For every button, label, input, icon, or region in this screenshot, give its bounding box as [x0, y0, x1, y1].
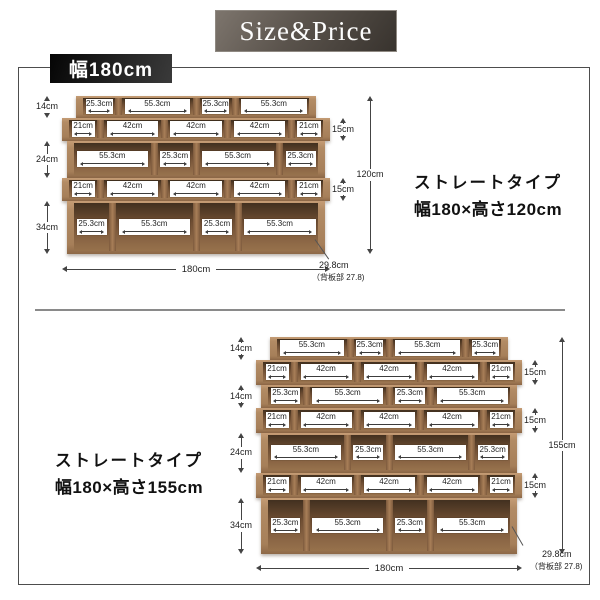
arrow-right-icon	[507, 488, 510, 492]
dimension-line	[319, 400, 377, 401]
width-arrow-icon	[205, 162, 270, 166]
width-arrow-icon	[274, 455, 338, 459]
dimension-line	[241, 438, 242, 447]
compartment: 42cm	[361, 475, 417, 495]
measurement-text: 21cm	[267, 478, 287, 486]
dimension-line	[271, 376, 283, 377]
measurement-label: 21cm	[490, 364, 513, 379]
height-dimension: 34cm	[228, 498, 254, 554]
arrow-right-icon	[107, 109, 110, 113]
arrow-right-icon	[338, 351, 341, 355]
arrow-right-icon	[346, 423, 349, 427]
dimension-line	[277, 457, 335, 458]
compartment: 42cm	[168, 180, 225, 198]
measurement-label: 21cm	[490, 477, 513, 492]
compartment: 25.3cm	[469, 339, 501, 357]
shelf-row: 21cm42cm42cm42cm21cm	[256, 408, 522, 433]
total-width-dimension: 180cm	[256, 562, 522, 574]
compartment: 55.3cm	[393, 435, 469, 470]
compartment: 25.3cm	[354, 339, 386, 357]
shelf-diagram: 25.3cm55.3cm25.3cm55.3cm21cm42cm42cm42cm…	[62, 96, 330, 254]
measurement-label: 55.3cm	[280, 340, 345, 355]
width-arrow-icon	[359, 351, 381, 355]
compartment: 42cm	[231, 180, 288, 198]
compartment: 55.3cm	[122, 98, 192, 115]
arrow-right-icon	[283, 423, 286, 427]
measurement-text: 55.3cm	[225, 152, 251, 160]
dimension-line	[47, 165, 48, 173]
wood-divider	[480, 410, 487, 430]
width-arrow-icon	[303, 375, 348, 379]
compartment: 25.3cm	[200, 98, 232, 115]
dimension-line	[306, 424, 345, 425]
width-arrow-icon	[492, 423, 510, 427]
measurement-label: 25.3cm	[395, 388, 425, 403]
arrow-right-icon	[300, 109, 303, 113]
compartment: 25.3cm	[83, 98, 115, 115]
measurement-text: 55.3cm	[414, 341, 440, 349]
arrow-right-icon	[419, 399, 422, 403]
compartment: 55.3cm	[239, 98, 309, 115]
dimension-line	[208, 231, 227, 232]
arrow-right-icon	[184, 109, 187, 113]
wood-divider	[115, 98, 122, 115]
wood-divider	[303, 387, 310, 405]
width-arrow-icon	[173, 192, 219, 196]
arrow-right-icon	[409, 423, 412, 427]
size-label: 幅180×高さ120cm	[390, 195, 586, 220]
compartment: 21cm	[487, 362, 515, 382]
total-height-arrow: 120cm	[356, 96, 384, 254]
dimension-line	[83, 163, 142, 164]
arrow-right-icon	[335, 455, 338, 459]
arrow-right-icon	[267, 162, 270, 166]
measurement-label: 55.3cm	[395, 445, 466, 460]
arrow-down-icon	[238, 355, 244, 360]
width-arrow-icon	[204, 109, 226, 113]
wood-divider	[193, 203, 200, 251]
measurement-label: 21cm	[297, 121, 320, 136]
width-arrow-icon	[163, 162, 188, 166]
height-dimension-label: 15cm	[524, 415, 546, 427]
compartment: 21cm	[69, 120, 97, 138]
height-dimension-label: 14cm	[230, 391, 252, 403]
width-arrow-icon	[366, 423, 411, 427]
arrow-right-icon	[419, 528, 422, 532]
compartment: 55.3cm	[74, 143, 151, 175]
measurement-label: 55.3cm	[312, 518, 383, 533]
wood-divider	[151, 143, 158, 175]
measurement-text: 25.3cm	[355, 446, 381, 454]
measurement-label: 21cm	[266, 477, 289, 492]
compartment: 42cm	[361, 410, 417, 430]
total-height-label: 155cm	[547, 440, 578, 452]
shelf-row: 25.3cm55.3cm25.3cm55.3cm	[67, 201, 325, 254]
width-arrow-icon	[283, 351, 341, 355]
width-arrow-icon	[247, 230, 312, 234]
width-arrow-icon	[429, 423, 474, 427]
arrow-right-icon	[283, 375, 286, 379]
width-arrow-icon	[288, 162, 313, 166]
measurement-text: 25.3cm	[272, 389, 298, 397]
wood-divider	[427, 500, 434, 551]
width-arrow-icon	[173, 132, 219, 136]
dimension-line	[306, 489, 345, 490]
arrow-right-icon	[378, 351, 381, 355]
measurement-label: 42cm	[107, 181, 159, 196]
arrow-right-icon	[377, 528, 380, 532]
compartment: 55.3cm	[310, 387, 386, 405]
total-width-dimension: 180cm	[62, 263, 330, 275]
type-caption: ストレートタイプ 幅180×高さ155cm	[23, 447, 235, 498]
measurement-label: 42cm	[364, 412, 415, 427]
measurement-label: 21cm	[266, 412, 289, 427]
height-dimensions-right: 15cm15cm	[332, 96, 354, 254]
compartment: 21cm	[263, 410, 291, 430]
wood-divider	[224, 120, 231, 138]
depth-note-label: （背板部 27.8)	[312, 272, 364, 283]
wood-divider	[417, 475, 424, 495]
arrow-down-icon	[44, 113, 50, 118]
dimension-line	[241, 459, 242, 468]
measurement-text: 25.3cm	[480, 446, 506, 454]
height-dimension-label: 34cm	[36, 222, 58, 234]
dimension-line	[369, 489, 408, 490]
arrow-right-icon	[310, 162, 313, 166]
dimension-line	[369, 376, 408, 377]
type-label: ストレートタイプ	[390, 169, 586, 193]
measurement-text: 55.3cm	[417, 446, 443, 454]
dimension-line	[91, 111, 107, 112]
height-dimension-label: 15cm	[524, 367, 546, 379]
dimension-line	[207, 111, 223, 112]
measurement-text: 42cm	[250, 122, 270, 130]
width-arrow-icon	[429, 488, 474, 492]
width-arrow-icon	[366, 488, 411, 492]
dimension-line	[562, 342, 563, 440]
measurement-label: 42cm	[234, 181, 286, 196]
height-dimension-label: 14cm	[36, 101, 58, 113]
compartment: 55.3cm	[268, 435, 344, 470]
dimension-line	[495, 424, 507, 425]
measurement-label: 42cm	[107, 121, 159, 136]
wood-divider	[386, 500, 393, 551]
measurement-label: 25.3cm	[353, 445, 383, 460]
arrow-down-icon	[532, 493, 538, 498]
arrow-right-icon	[152, 132, 155, 136]
arrow-right-icon	[453, 351, 456, 355]
wood-divider	[347, 339, 354, 357]
width-arrow-icon	[79, 230, 104, 234]
width-arrow-icon	[366, 375, 411, 379]
width-arrow-icon	[398, 528, 423, 532]
height-dimension-label: 15cm	[332, 124, 354, 136]
measurement-text: 55.3cm	[99, 152, 125, 160]
measurement-text: 55.3cm	[334, 389, 360, 397]
compartment: 25.3cm	[283, 143, 318, 175]
compartment: 55.3cm	[277, 339, 347, 357]
shelf-row: 25.3cm55.3cm25.3cm55.3cm	[261, 498, 517, 554]
wood-divider	[97, 180, 104, 198]
wood-divider	[288, 180, 295, 198]
measurement-label: 42cm	[427, 477, 478, 492]
height-dimension-label: 34cm	[230, 520, 252, 532]
width-arrow-icon	[356, 455, 381, 459]
measurement-text: 25.3cm	[204, 220, 230, 228]
measurement-text: 25.3cm	[397, 519, 423, 527]
measurement-label: 21cm	[490, 412, 513, 427]
width-arrow-icon	[492, 488, 510, 492]
dimension-line	[306, 376, 345, 377]
dimension-line	[82, 231, 101, 232]
height-dimension: 34cm	[34, 201, 60, 254]
compartment: 21cm	[487, 410, 515, 430]
arrow-right-icon	[409, 375, 412, 379]
compartment: 21cm	[295, 120, 323, 138]
measurement-label: 55.3cm	[77, 151, 149, 166]
arrow-right-icon	[101, 230, 104, 234]
measurement-text: 21cm	[299, 182, 319, 190]
measurement-label: 42cm	[364, 364, 415, 379]
measurement-text: 42cm	[250, 182, 270, 190]
wood-divider	[480, 362, 487, 382]
wood-divider	[480, 475, 487, 495]
arrow-down-icon	[340, 196, 346, 201]
measurement-label: 25.3cm	[356, 340, 383, 355]
dimension-line	[67, 269, 176, 270]
compartment: 42cm	[298, 475, 354, 495]
arrow-right-icon	[377, 455, 380, 459]
total-width-label: 180cm	[176, 264, 217, 275]
arrow-right-icon	[507, 375, 510, 379]
compartment: 42cm	[424, 362, 480, 382]
measurement-label: 55.3cm	[202, 151, 274, 166]
wood-divider	[386, 339, 393, 357]
measurement-text: 42cm	[316, 413, 336, 421]
dimension-line	[113, 133, 153, 134]
measurement-label: 42cm	[301, 364, 352, 379]
dimension-line	[286, 352, 338, 353]
size-price-header: Size&Price	[215, 10, 397, 52]
dimension-line	[166, 163, 185, 164]
type-label: ストレートタイプ	[23, 447, 235, 471]
measurement-text: 55.3cm	[459, 389, 485, 397]
height-dimension-label: 14cm	[230, 343, 252, 355]
width-arrow-icon	[300, 132, 318, 136]
section-shelf-155cm: 55.3cm25.3cm55.3cm25.3cm21cm42cm42cm42cm…	[18, 311, 590, 585]
measurement-text: 42cm	[379, 365, 399, 373]
shelf-row: 21cm42cm42cm42cm21cm	[256, 360, 522, 385]
dimension-line	[432, 376, 471, 377]
measurement-label: 42cm	[170, 121, 222, 136]
measurement-label: 25.3cm	[77, 219, 107, 234]
width-arrow-icon	[440, 399, 504, 403]
dimension-line	[276, 400, 295, 401]
arrow-right-icon	[502, 455, 505, 459]
measurement-text: 55.3cm	[261, 100, 287, 108]
wood-divider	[468, 435, 475, 470]
compartment: 55.3cm	[242, 203, 319, 251]
measurement-label: 25.3cm	[271, 518, 301, 533]
dimension-line	[303, 133, 315, 134]
measurement-text: 25.3cm	[397, 389, 423, 397]
compartment: 42cm	[361, 362, 417, 382]
measurement-text: 42cm	[186, 122, 206, 130]
dimension-line	[562, 451, 563, 549]
height-dimension: 24cm	[34, 141, 60, 178]
width-arrow-icon	[74, 132, 92, 136]
arrow-down-icon	[532, 428, 538, 433]
measurement-label: 42cm	[301, 412, 352, 427]
wood-divider	[224, 180, 231, 198]
total-height-arrow: 155cm	[548, 337, 576, 554]
measurement-label: 55.3cm	[125, 99, 190, 114]
width-arrow-icon	[480, 455, 505, 459]
width-arrow-icon	[205, 230, 230, 234]
compartment: 42cm	[298, 410, 354, 430]
measurement-label: 55.3cm	[437, 388, 508, 403]
measurement-text: 21cm	[491, 413, 511, 421]
width-arrow-icon	[303, 488, 348, 492]
compartment: 21cm	[487, 475, 515, 495]
measurement-text: 42cm	[186, 182, 206, 190]
shelf-row: 55.3cm25.3cm55.3cm25.3cm	[270, 337, 508, 360]
measurement-label: 21cm	[297, 181, 320, 196]
depth-label: 29.8cm	[319, 260, 349, 270]
compartment: 25.3cm	[393, 500, 428, 551]
height-dimension-label: 15cm	[524, 480, 546, 492]
wood-divider	[291, 410, 298, 430]
compartment: 25.3cm	[200, 203, 235, 251]
dimension-line	[319, 530, 377, 531]
dimension-line	[432, 489, 471, 490]
arrow-right-icon	[279, 132, 282, 136]
arrow-right-icon	[184, 162, 187, 166]
height-dimension: 14cm	[228, 385, 254, 408]
width-arrow-icon	[474, 351, 496, 355]
width-arrow-icon	[429, 375, 474, 379]
width-arrow-icon	[492, 375, 510, 379]
dimension-line	[401, 530, 420, 531]
arrow-down-icon	[44, 249, 50, 254]
dimension-line	[271, 424, 283, 425]
dimension-line	[271, 489, 283, 490]
dimension-line	[261, 568, 369, 569]
measurement-label: 25.3cm	[472, 340, 499, 355]
dimension-line	[401, 457, 459, 458]
height-dimensions-left: 14cm14cm24cm34cm	[228, 337, 254, 554]
dimension-line	[176, 193, 216, 194]
arrow-down-icon	[238, 468, 244, 473]
measurement-label: 55.3cm	[271, 445, 342, 460]
measurement-label: 42cm	[301, 477, 352, 492]
measurement-text: 42cm	[123, 182, 143, 190]
measurement-text: 25.3cm	[356, 341, 382, 349]
arrow-right-icon	[309, 230, 312, 234]
arrow-right-icon	[472, 423, 475, 427]
dimension-line	[409, 568, 517, 569]
dimension-line	[125, 231, 184, 232]
total-width-label: 180cm	[369, 563, 410, 574]
arrow-down-icon	[238, 403, 244, 408]
measurement-text: 42cm	[442, 478, 462, 486]
height-dimension: 15cm	[332, 178, 354, 201]
height-dimension: 15cm	[524, 360, 546, 385]
shelf-diagram: 55.3cm25.3cm55.3cm25.3cm21cm42cm42cm42cm…	[256, 337, 522, 554]
compartment: 21cm	[69, 180, 97, 198]
height-dimension: 15cm	[524, 408, 546, 433]
measurement-text: 25.3cm	[86, 100, 112, 108]
measurement-text: 21cm	[491, 478, 511, 486]
height-dimension: 15cm	[524, 473, 546, 498]
dimension-line	[216, 269, 325, 270]
width-arrow-icon	[303, 423, 348, 427]
measurement-label: 55.3cm	[244, 219, 316, 234]
measurement-text: 42cm	[123, 122, 143, 130]
arrow-down-icon	[238, 549, 244, 554]
width-arrow-icon	[268, 375, 286, 379]
width-arrow-icon	[74, 192, 92, 196]
wood-divider	[161, 180, 168, 198]
arrow-right-icon	[346, 488, 349, 492]
width-arrow-icon	[316, 399, 380, 403]
measurement-text: 55.3cm	[267, 220, 293, 228]
shelf-row: 21cm42cm42cm42cm21cm	[62, 178, 330, 201]
wood-divider	[291, 362, 298, 382]
total-height-dimension: 155cm	[548, 337, 576, 554]
dimension-line	[240, 193, 280, 194]
arrow-right-icon	[216, 192, 219, 196]
compartment: 55.3cm	[310, 500, 386, 551]
wood-divider	[276, 143, 283, 175]
dimension-line	[359, 457, 378, 458]
measurement-text: 21cm	[267, 413, 287, 421]
measurement-label: 25.3cm	[478, 445, 508, 460]
dimension-line	[77, 133, 89, 134]
measurement-text: 21cm	[491, 365, 511, 373]
arrow-right-icon	[493, 351, 496, 355]
wood-divider	[193, 98, 200, 115]
wood-divider	[344, 435, 351, 470]
measurement-label: 21cm	[72, 181, 95, 196]
measurement-text: 21cm	[267, 365, 287, 373]
compartment: 25.3cm	[393, 387, 428, 405]
height-dimension: 14cm	[228, 337, 254, 360]
width-arrow-icon	[398, 399, 423, 403]
compartment: 25.3cm	[74, 203, 109, 251]
page: Size&Price 幅180cm 25.3cm55.3cm25.3cm55.3…	[0, 0, 600, 600]
compartment: 21cm	[263, 362, 291, 382]
wood-divider	[109, 203, 116, 251]
wood-divider	[427, 387, 434, 405]
measurement-label: 21cm	[266, 364, 289, 379]
wood-divider	[161, 120, 168, 138]
measurement-label: 42cm	[170, 181, 222, 196]
measurement-label: 42cm	[427, 364, 478, 379]
height-dimension-label: 15cm	[332, 184, 354, 196]
measurement-text: 21cm	[73, 182, 93, 190]
measurement-text: 25.3cm	[202, 100, 228, 108]
dimension-line	[495, 376, 507, 377]
measurement-text: 55.3cm	[293, 446, 319, 454]
arrow-right-icon	[283, 488, 286, 492]
wood-divider	[417, 362, 424, 382]
width-arrow-icon	[273, 399, 298, 403]
dimension-line	[113, 193, 153, 194]
measurement-label: 55.3cm	[437, 518, 508, 533]
width-arrow-icon	[300, 192, 318, 196]
total-height-label: 120cm	[355, 169, 386, 181]
